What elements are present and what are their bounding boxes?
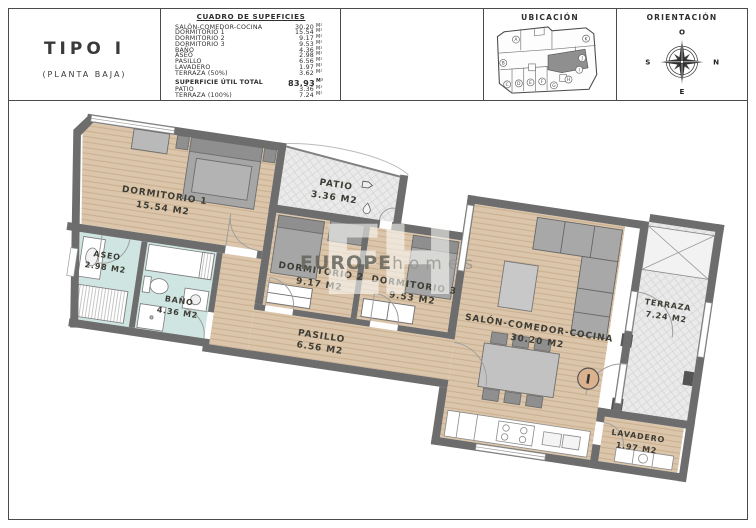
floor-plan-sheet: { "header": { "tipo": { "title": "TIPO I… bbox=[0, 0, 756, 528]
terraza-void-box bbox=[642, 226, 715, 279]
floor-plan-drawing: I DORMITORIO 1 15.54 M2 PATIO 3.36 M2 AS… bbox=[0, 0, 756, 528]
coffee-table bbox=[498, 261, 538, 312]
